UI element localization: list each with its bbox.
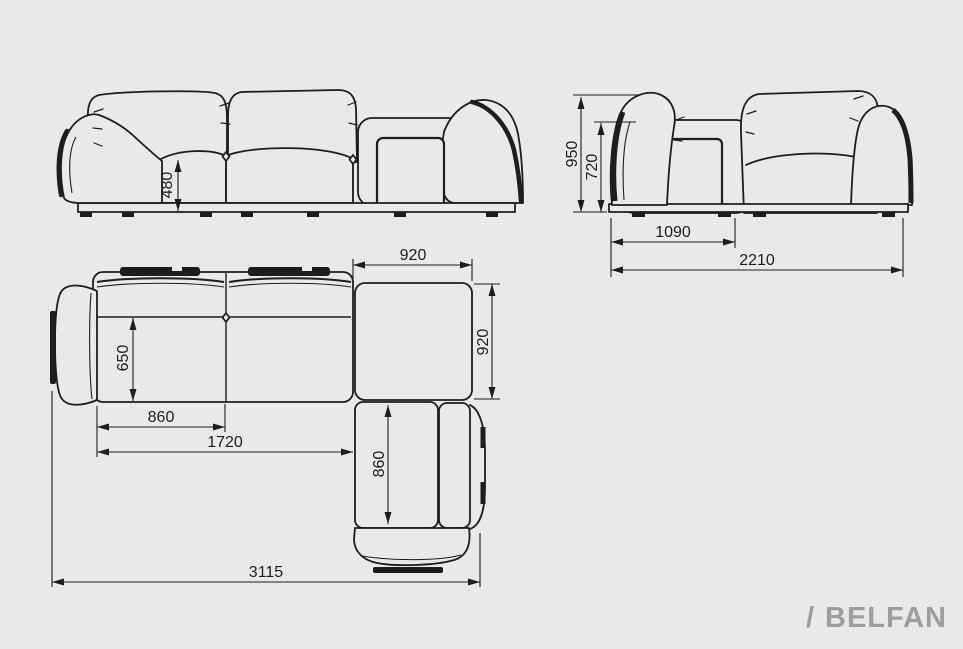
plan-connector-bracket-left bbox=[120, 267, 200, 276]
plan-left-arm-bar bbox=[50, 311, 56, 384]
plan-sofa-body bbox=[93, 272, 353, 402]
plan-connector-bracket-right bbox=[248, 267, 330, 276]
plan-chaise-back-panel bbox=[470, 405, 485, 529]
brand-logo: /BELFAN bbox=[806, 602, 947, 635]
dim-seat-depth-value: 650 bbox=[115, 345, 132, 372]
front-corner-opening bbox=[377, 138, 444, 209]
dim-overall-height-value: 950 bbox=[564, 141, 581, 168]
side-left-armrest bbox=[611, 93, 675, 205]
plan-chaise-seat bbox=[355, 402, 438, 528]
dim-corner-width-value: 920 bbox=[400, 247, 427, 264]
dim-corner-width: 920 bbox=[353, 247, 472, 281]
front-elevation-view: 480 bbox=[59, 90, 523, 217]
dim-two-seat-width: 1720 bbox=[97, 434, 353, 452]
dim-corner-depth: 920 bbox=[474, 284, 500, 399]
plan-bracket-notch-right bbox=[302, 267, 312, 271]
dim-overall-length-value: 3115 bbox=[249, 564, 284, 581]
dim-seat-height-value: 480 bbox=[159, 172, 176, 199]
drawing-canvas: 480 950 bbox=[0, 0, 963, 649]
plan-chaise-back-cushion bbox=[439, 403, 470, 528]
plan-bracket-notch-left bbox=[172, 267, 182, 271]
dim-two-seat-width-value: 1720 bbox=[207, 434, 243, 451]
brand-slash: / bbox=[806, 602, 815, 634]
front-right-armrest bbox=[441, 100, 523, 203]
dim-corner-module-depth-value: 1090 bbox=[655, 224, 691, 241]
sofa-technical-drawing: 480 950 bbox=[0, 0, 963, 649]
top-plan-view: 920 920 650 860 1720 860 bbox=[50, 247, 500, 587]
front-base bbox=[78, 203, 515, 212]
dim-seat-width-value: 860 bbox=[148, 409, 175, 426]
brand-name: BELFAN bbox=[825, 602, 947, 634]
dim-overall-depth-value: 2210 bbox=[739, 252, 775, 269]
dim-corner-depth-value: 920 bbox=[475, 329, 492, 356]
side-elevation-view: 950 720 1090 2210 bbox=[564, 91, 912, 277]
dim-chaise-seat-length-value: 860 bbox=[371, 451, 388, 478]
front-seat-cushion-right bbox=[226, 148, 353, 203]
plan-chaise-foot-bar bbox=[373, 567, 443, 573]
dim-seat-width: 860 bbox=[97, 404, 225, 457]
plan-corner-module bbox=[355, 283, 472, 400]
dim-corner-module-depth: 1090 bbox=[611, 218, 735, 277]
dim-armrest-height-value: 720 bbox=[584, 154, 601, 181]
